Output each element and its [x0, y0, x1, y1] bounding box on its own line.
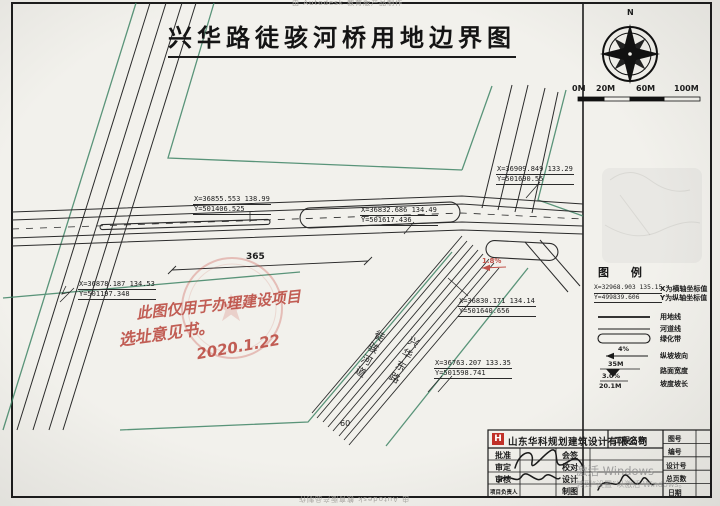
coord-y: Y=501617.436: [360, 216, 438, 226]
legend-item-label: 用地线: [660, 312, 681, 322]
coord-x: X=36855.553 138.99: [193, 195, 271, 205]
faint-ghost-image: [602, 168, 702, 263]
legend-item-label: Y为纵轴坐标值: [660, 293, 707, 303]
project-name-label: 工程名称: [614, 435, 646, 446]
coord-x: X=36763.207 133.35: [434, 359, 512, 369]
coord-y: Y=501690.55: [496, 175, 574, 185]
slope-annotation: 1.8%: [482, 257, 501, 265]
coord-callout: X=36878.187 134.53 Y=501197.348: [78, 280, 156, 300]
coord-y: Y=501598.741: [434, 369, 512, 379]
coord-y: Y=501640.656: [458, 307, 536, 317]
compass-north-label: N: [627, 8, 634, 17]
legend-slope-value: 4%: [618, 345, 629, 353]
coord-callout: X=36855.553 138.99 Y=501406.525: [193, 195, 271, 215]
legend-title: 图 例: [598, 264, 651, 280]
tb-number-label: 编号: [668, 446, 682, 456]
tb-review-label: 审核: [495, 474, 511, 485]
dimension-60: 60: [340, 419, 350, 428]
legend-sample-y: Y=499839.606: [594, 294, 662, 304]
tb-verify-label: 审定: [495, 462, 511, 473]
legend-width-value: 35M: [608, 360, 624, 368]
coord-y: Y=501197.348: [78, 290, 156, 300]
coord-callout: X=36909.849 133.29 Y=501690.55: [496, 165, 574, 185]
coord-callout: X=36830.171 134.14 Y=501640.656: [458, 297, 536, 317]
autodesk-watermark-bottom: 由 Autodesk 教育版产品制作: [298, 494, 409, 504]
legend-sample-coord: X=32968.903 135.15 Y=499839.606: [594, 284, 662, 303]
dimension-365: 365: [246, 252, 265, 262]
legend-item-label: 纵坡坡向: [660, 351, 688, 361]
scanned-drawing-photo: 由 Autodesk 教育版产品制作 由 Autodesk 教育版产品制作 兴华…: [0, 0, 720, 506]
activate-windows-watermark-line2: 转到“设置”以激活 Windows。: [576, 479, 687, 490]
coord-x: X=36909.849 133.29: [496, 165, 574, 175]
tb-designno-label: 设计号: [666, 460, 686, 470]
coord-callout: X=36832.686 134.49 Y=501617.436: [360, 206, 438, 226]
scale-label-0: 0M: [572, 84, 586, 93]
tb-drawingno-label: 图号: [668, 433, 682, 443]
coord-callout: X=36763.207 133.35 Y=501598.741: [434, 359, 512, 379]
scale-label-60: 60M: [636, 84, 655, 93]
activate-windows-watermark-line1: 激活 Windows: [576, 463, 654, 479]
legend-grade-bottom: 20.1M: [599, 382, 622, 390]
tb-countersign-label: 会签: [562, 450, 578, 461]
legend-item-label: 绿化带: [660, 334, 681, 344]
legend-item-label: 路面宽度: [660, 366, 688, 376]
drawing-title: 兴华路徒骇河桥用地边界图: [168, 18, 516, 58]
coord-x: X=36878.187 134.53: [78, 280, 156, 290]
scale-label-100: 100M: [674, 84, 699, 93]
legend-item-label: 坡度坡长: [660, 379, 688, 389]
autodesk-watermark-top: 由 Autodesk 教育版产品制作: [292, 0, 403, 8]
coord-x: X=36830.171 134.14: [458, 297, 536, 307]
company-logo: H: [492, 433, 504, 445]
tb-approve-label: 批准: [495, 450, 511, 461]
tb-lead-label: 项目负责人: [490, 488, 518, 496]
coord-x: X=36832.686 134.49: [360, 206, 438, 216]
drawing-paper: 由 Autodesk 教育版产品制作 由 Autodesk 教育版产品制作 兴华…: [0, 0, 720, 506]
legend-sample-x: X=32968.903 135.15: [594, 284, 662, 294]
legend-item-label: 河道线: [660, 324, 681, 334]
legend-grade-top: 3.0%: [602, 372, 620, 380]
scale-label-20: 20M: [596, 84, 615, 93]
coord-y: Y=501406.525: [193, 205, 271, 215]
